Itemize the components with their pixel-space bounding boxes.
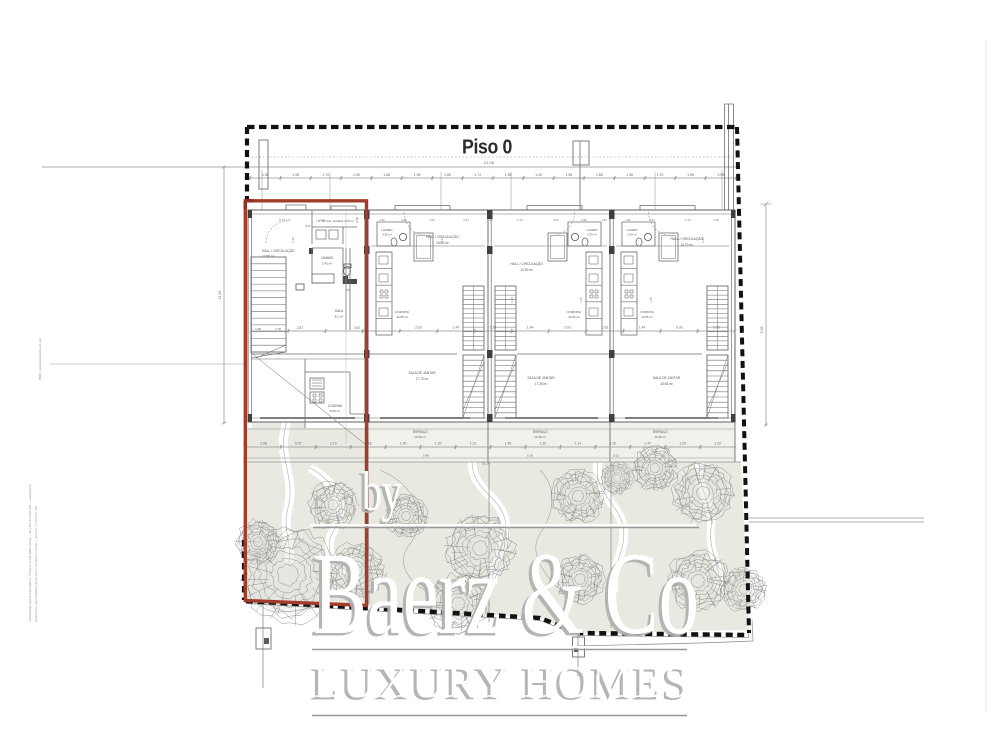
svg-text:2.03: 2.03	[564, 326, 571, 330]
svg-text:HALL / CIRCULAÇÃO: HALL / CIRCULAÇÃO	[262, 248, 295, 253]
svg-text:0.30: 0.30	[490, 326, 497, 330]
svg-text:1.20: 1.20	[435, 442, 442, 446]
svg-text:SALA DE JANTAR: SALA DE JANTAR	[527, 376, 555, 380]
svg-text:1.70: 1.70	[275, 327, 281, 331]
svg-text:5.02: 5.02	[613, 454, 619, 458]
svg-text:1.20: 1.20	[714, 442, 721, 446]
svg-text:1.63: 1.63	[601, 326, 608, 330]
svg-text:2.44: 2.44	[517, 218, 523, 222]
svg-text:3.42: 3.42	[440, 237, 444, 243]
svg-text:2.46: 2.46	[701, 237, 705, 243]
svg-text:HALL / CIRCULAÇÃO: HALL / CIRCULAÇÃO	[510, 261, 543, 266]
svg-text:TERRAÇO: TERRAÇO	[412, 430, 428, 434]
svg-text:1.82: 1.82	[625, 218, 631, 222]
svg-text:SALA: SALA	[335, 309, 344, 313]
svg-text:1.98: 1.98	[353, 173, 360, 177]
svg-text:1.10: 1.10	[330, 442, 337, 446]
svg-text:1.06: 1.06	[255, 327, 261, 331]
svg-text:2.40: 2.40	[319, 218, 325, 222]
svg-text:2.68: 2.68	[260, 442, 267, 446]
svg-text:COZINHA: COZINHA	[328, 404, 343, 408]
svg-text:2.03: 2.03	[415, 326, 422, 330]
svg-text:COZINHA: COZINHA	[567, 310, 582, 314]
svg-text:0.80: 0.80	[581, 218, 587, 222]
svg-text:SALA DE JANTAR: SALA DE JANTAR	[408, 371, 436, 375]
svg-text:1.70: 1.70	[657, 173, 664, 177]
svg-text:2.15: 2.15	[713, 218, 719, 222]
svg-text:0.98: 0.98	[717, 173, 724, 177]
svg-text:10.65 m²: 10.65 m²	[568, 315, 580, 319]
svg-text:2.44: 2.44	[463, 218, 469, 222]
svg-text:1.12: 1.12	[470, 442, 477, 446]
svg-text:1.72: 1.72	[474, 173, 481, 177]
svg-text:1.98: 1.98	[505, 173, 512, 177]
svg-text:Piso 0: Piso 0	[462, 136, 512, 159]
svg-text:9.35: 9.35	[760, 327, 764, 334]
svg-text:10.60 m²: 10.60 m²	[414, 435, 426, 439]
svg-text:1.14: 1.14	[574, 442, 581, 446]
svg-text:0.30: 0.30	[487, 218, 493, 222]
svg-text:1.88: 1.88	[596, 173, 603, 177]
svg-text:1.47: 1.47	[644, 442, 651, 446]
svg-text:by: by	[362, 461, 402, 523]
svg-text:17.56 m²: 17.56 m²	[262, 255, 275, 259]
svg-text:3.03: 3.03	[649, 218, 655, 222]
svg-text:2.40: 2.40	[355, 217, 359, 223]
svg-text:1.88: 1.88	[383, 173, 390, 177]
svg-text:Urbanização Quinta S.Gonçalo l: Urbanização Quinta S.Gonçalo lt. 7 Fase …	[28, 484, 32, 622]
svg-text:2.45 m²: 2.45 m²	[322, 262, 332, 266]
svg-text:COZINHA: COZINHA	[640, 310, 655, 314]
svg-text:0.37: 0.37	[305, 224, 311, 228]
svg-text:LAVABO: LAVABO	[381, 228, 393, 232]
svg-text:0.92: 0.92	[354, 326, 360, 330]
svg-text:1.98: 1.98	[626, 173, 633, 177]
svg-text:BMC | moradias banda urb. q: BMC | moradias banda urb. qta	[38, 338, 42, 380]
svg-text:TERRAÇO: TERRAÇO	[652, 430, 668, 434]
svg-text:8.2 m²: 8.2 m²	[335, 315, 344, 319]
svg-text:SALA DE JANTAR: SALA DE JANTAR	[653, 376, 681, 380]
svg-text:3.30 m²: 3.30 m²	[627, 233, 637, 237]
svg-text:11.00 m²: 11.00 m²	[654, 435, 666, 439]
svg-text:0.97: 0.97	[295, 442, 302, 446]
svg-text:21.18: 21.18	[482, 462, 490, 466]
svg-text:17.75 m²: 17.75 m²	[416, 377, 429, 381]
svg-text:2.44: 2.44	[685, 218, 691, 222]
svg-text:1.44: 1.44	[639, 326, 646, 330]
svg-text:COZINHA: COZINHA	[395, 310, 410, 314]
svg-text:3.03: 3.03	[553, 218, 559, 222]
svg-text:1.20: 1.20	[679, 442, 686, 446]
svg-text:3.03: 3.03	[429, 218, 435, 222]
svg-text:1.44: 1.44	[527, 326, 534, 330]
svg-text:2.46: 2.46	[291, 237, 295, 243]
svg-text:1.71: 1.71	[285, 218, 291, 222]
svg-text:10.40 m²: 10.40 m²	[534, 435, 546, 439]
svg-text:HALL / CIRCULAÇÃO: HALL / CIRCULAÇÃO	[671, 236, 704, 241]
svg-text:17.25 m²: 17.25 m²	[535, 382, 548, 386]
svg-text:0.30: 0.30	[676, 326, 683, 330]
svg-text:11.33: 11.33	[218, 291, 222, 300]
svg-text:0.80: 0.80	[401, 218, 407, 222]
svg-text:21.06: 21.06	[484, 160, 495, 165]
svg-text:LAVABO: LAVABO	[626, 228, 638, 232]
svg-text:8.66 m²: 8.66 m²	[330, 409, 340, 413]
svg-text:10.65 m²: 10.65 m²	[641, 315, 653, 319]
svg-text:1.98: 1.98	[292, 173, 299, 177]
svg-text:2.03: 2.03	[713, 326, 720, 330]
svg-text:1.20: 1.20	[540, 442, 547, 446]
svg-text:1.44: 1.44	[452, 326, 459, 330]
svg-text:arquitectura | especialidade: arquitectura | especialidades plantas pi…	[34, 506, 38, 622]
svg-text:3.45: 3.45	[510, 297, 514, 303]
svg-text:3.45: 3.45	[649, 297, 653, 303]
svg-text:1.40: 1.40	[400, 442, 407, 446]
svg-text:1.40: 1.40	[505, 442, 512, 446]
svg-text:Baerz & Co: Baerz & Co	[313, 528, 699, 659]
svg-text:14.70 m²: 14.70 m²	[680, 243, 693, 247]
svg-text:3.30 m²: 3.30 m²	[587, 233, 597, 237]
svg-text:LAVABO: LAVABO	[321, 256, 334, 260]
svg-text:1.70: 1.70	[323, 173, 330, 177]
svg-text:1.20: 1.20	[609, 442, 616, 446]
svg-text:1.98: 1.98	[687, 173, 694, 177]
svg-text:3.45: 3.45	[579, 297, 583, 303]
svg-text:1.88: 1.88	[444, 173, 451, 177]
svg-text:1.98: 1.98	[566, 173, 573, 177]
svg-text:2.87: 2.87	[297, 326, 303, 330]
svg-text:1.82: 1.82	[601, 218, 607, 222]
svg-text:5.45: 5.45	[423, 454, 429, 458]
svg-text:10.65 m²: 10.65 m²	[396, 315, 408, 319]
svg-text:TERRAÇO: TERRAÇO	[532, 430, 548, 434]
svg-text:1.49: 1.49	[535, 173, 542, 177]
svg-text:LAVABO: LAVABO	[586, 228, 598, 232]
svg-text:14.90 m²: 14.90 m²	[520, 268, 533, 272]
svg-text:18.65 m²: 18.65 m²	[660, 382, 673, 386]
svg-text:1.82: 1.82	[379, 218, 385, 222]
svg-text:5.26: 5.26	[527, 454, 533, 458]
svg-text:1.98: 1.98	[414, 173, 421, 177]
svg-text:3.30 m²: 3.30 m²	[382, 233, 392, 237]
